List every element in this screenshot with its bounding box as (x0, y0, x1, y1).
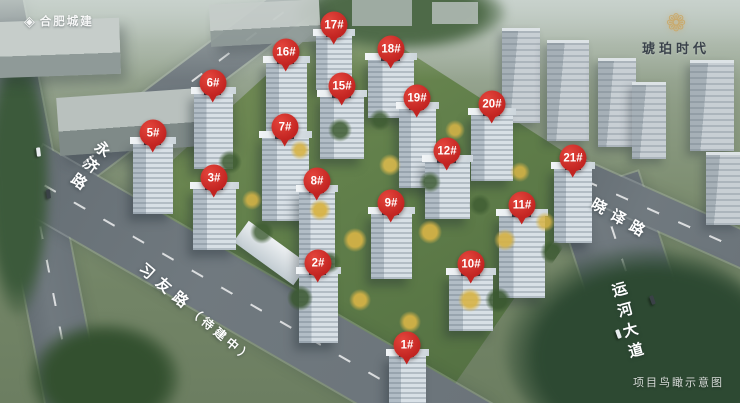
gold-emblem-icon: ❁ (628, 12, 724, 36)
building-number-pin-21: 21# (560, 145, 587, 172)
developer-diamond-icon: ◈ (24, 14, 35, 28)
building-number-pin-18: 18# (378, 36, 405, 63)
building-number-pin-10: 10# (458, 251, 485, 278)
marker-layer: 17#16#18#6#15#19#20#7#5#12#21#3#8#9#11#2… (0, 0, 740, 403)
building-number-pin-3: 3# (201, 165, 228, 192)
building-number-pin-19: 19# (404, 85, 431, 112)
building-number-pin-16: 16# (273, 39, 300, 66)
project-name: 琥珀时代 (628, 38, 724, 57)
building-number-pin-11: 11# (509, 192, 536, 219)
building-number-pin-5: 5# (140, 120, 167, 147)
developer-name: 合肥城建 (40, 13, 94, 29)
building-number-pin-12: 12# (434, 138, 461, 165)
building-number-pin-2: 2# (305, 250, 332, 277)
developer-logo: ◈ 合肥城建 (24, 13, 94, 29)
building-number-pin-1: 1# (394, 332, 421, 359)
building-number-pin-6: 6# (200, 70, 227, 97)
project-logo: ❁ 琥珀时代 (628, 12, 724, 57)
image-caption: 项目鸟瞰示意图 (633, 374, 724, 390)
building-number-pin-8: 8# (304, 168, 331, 195)
building-number-pin-20: 20# (479, 91, 506, 118)
aerial-site-plan: 17#16#18#6#15#19#20#7#5#12#21#3#8#9#11#2… (0, 0, 740, 403)
building-number-pin-15: 15# (329, 73, 356, 100)
building-number-pin-7: 7# (272, 114, 299, 141)
building-number-pin-9: 9# (378, 190, 405, 217)
building-number-pin-17: 17# (321, 12, 348, 39)
